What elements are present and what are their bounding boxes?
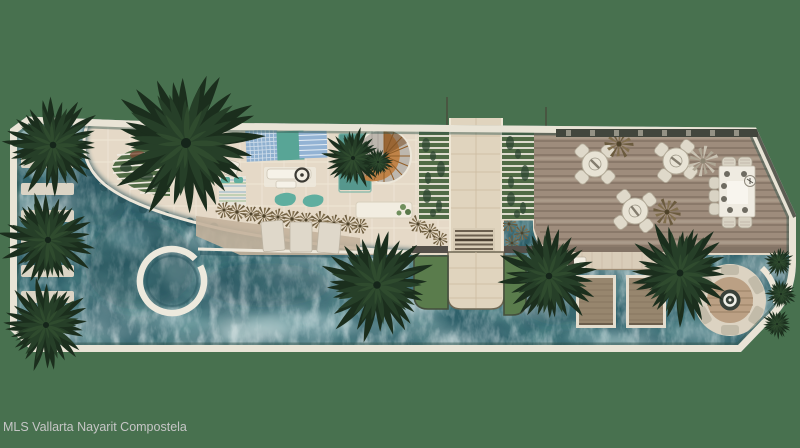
svg-text:MLS Vallarta Nayarit Compostel: MLS Vallarta Nayarit Compostela [3,420,187,434]
